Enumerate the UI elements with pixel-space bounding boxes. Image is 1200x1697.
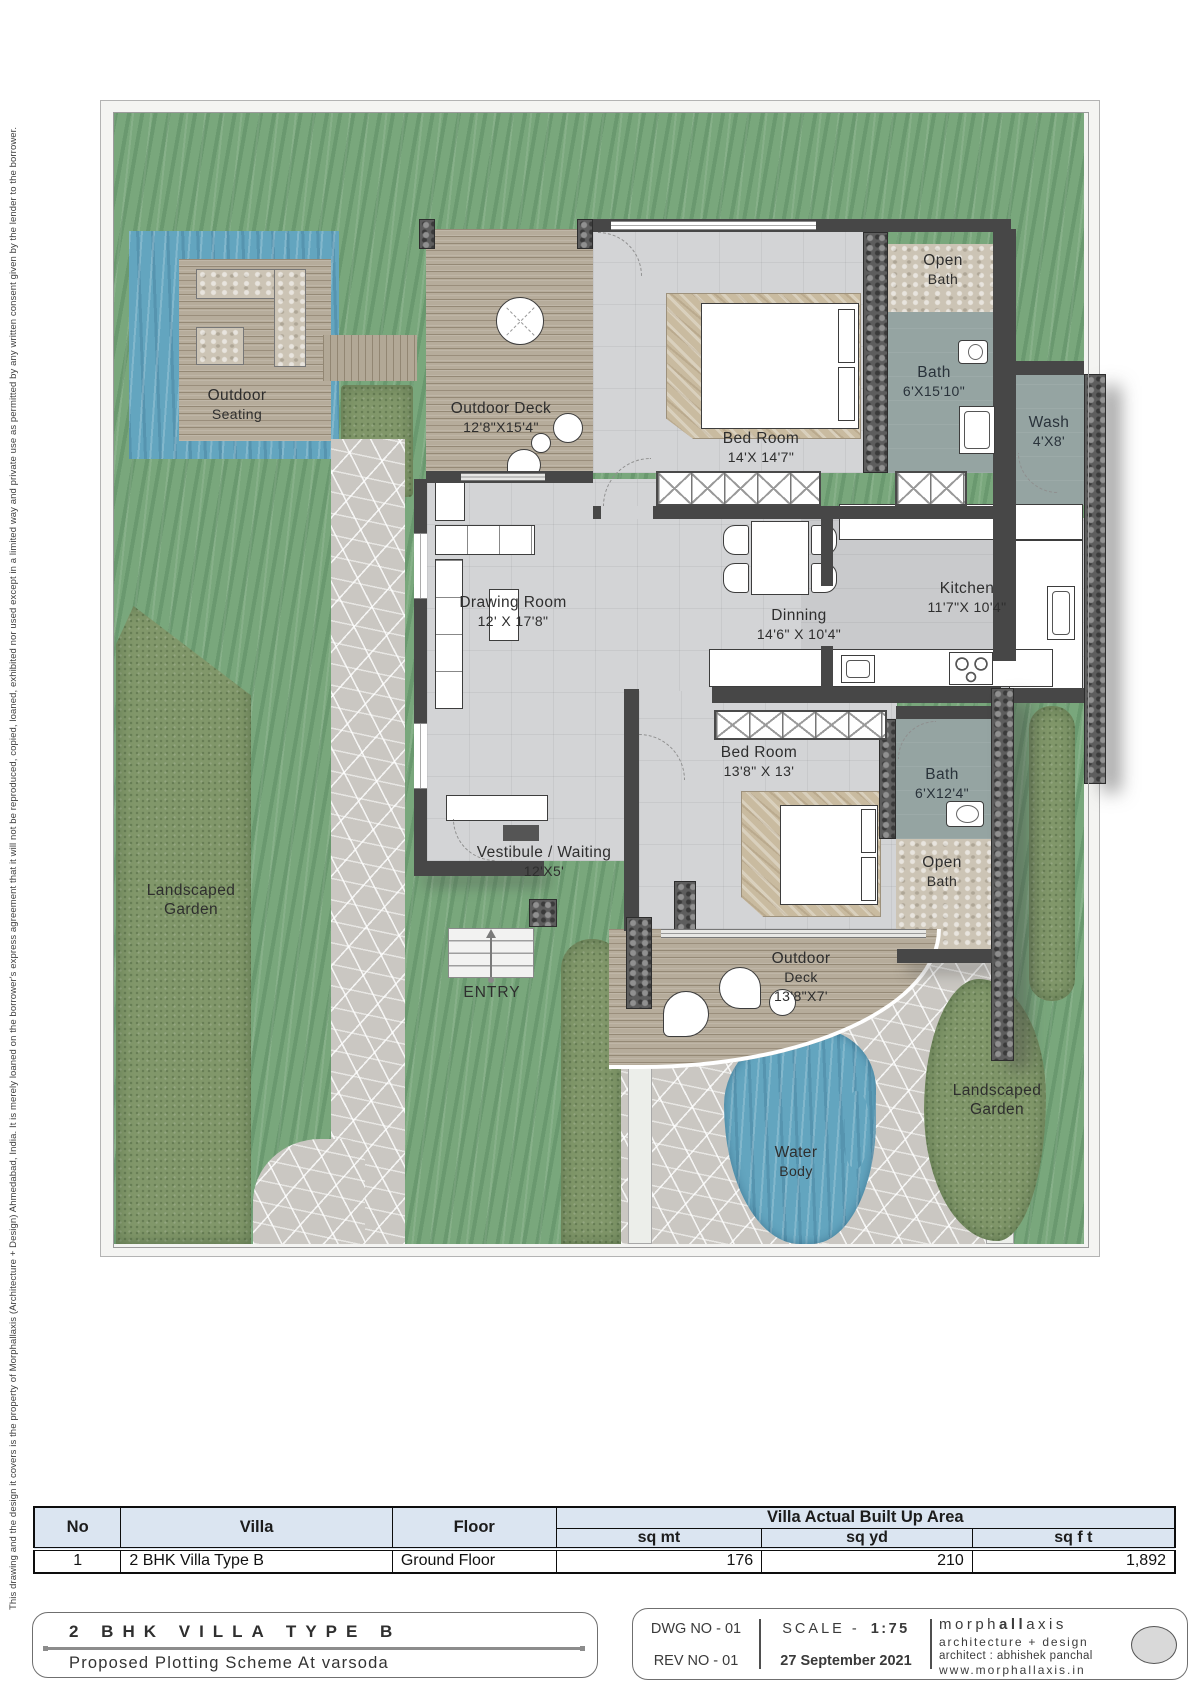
deck-pillar-left <box>419 219 435 249</box>
brand-tagline: architecture + design <box>939 1635 1089 1649</box>
kitchen-bottom-stub-wall <box>1014 688 1084 703</box>
col-no: No <box>34 1507 121 1549</box>
site-plan: OutdoorSeating Outdoor Deck12'8"X15'4" B… <box>100 100 1100 1257</box>
entry-arrow-line <box>490 937 492 977</box>
entry-arrow-head <box>486 929 496 938</box>
area-table-head: No Villa Floor Villa Actual Built Up Are… <box>34 1507 1175 1549</box>
brand-website: www.morphallaxis.in <box>939 1663 1086 1677</box>
label-open-bath2: OpenBath <box>922 853 962 891</box>
scale: SCALE - 1:75 <box>767 1621 925 1637</box>
wash-top-wall <box>1011 361 1084 375</box>
titleblock-right: DWG NO - 01 REV NO - 01 SCALE - 1:75 27 … <box>632 1608 1188 1680</box>
kitchen-sink <box>1047 586 1075 640</box>
copyright-disclaimer: This drawing and the design it covers is… <box>8 25 25 1610</box>
label-outdoor-seating: OutdoorSeating <box>208 386 267 424</box>
dwg-no: DWG NO - 01 <box>639 1621 753 1637</box>
wood-walkway <box>323 335 417 381</box>
col-sqmt: sq mt <box>556 1528 762 1549</box>
toilet-bath2 <box>946 801 984 827</box>
label-entry: ENTRY <box>463 983 520 1002</box>
divider-2 <box>930 1619 932 1669</box>
toilet-bath1 <box>958 340 988 364</box>
cell-sqmt: 176 <box>556 1549 762 1573</box>
col-sqyd: sq yd <box>762 1528 973 1549</box>
bedroom2-pillow-2 <box>861 857 876 901</box>
dining-chair-1 <box>723 525 749 555</box>
bedroom2-sliding-door <box>661 929 926 938</box>
sheet-subtitle: Proposed Plotting Scheme At varsoda <box>69 1654 389 1673</box>
sofa-horizontal <box>435 525 535 555</box>
vestibule-bench <box>446 795 548 821</box>
vestibule-side-table <box>503 825 539 841</box>
deck-round-table <box>496 297 544 345</box>
cell-sqyd: 210 <box>762 1549 973 1573</box>
area-table: No Villa Floor Villa Actual Built Up Are… <box>33 1506 1176 1574</box>
open-bath1-top-wall <box>863 219 1011 232</box>
bath2-top-wall <box>896 706 991 719</box>
landscaped-garden-right-strip <box>1029 706 1075 1001</box>
kitchen-bedroom2-wall <box>712 687 1001 703</box>
bedroom2-wardrobe <box>714 710 887 740</box>
basin-inner <box>846 660 870 678</box>
landscaped-garden-left <box>116 606 251 1244</box>
hob <box>949 652 993 685</box>
bedroom1-window <box>611 221 816 230</box>
bedroom1-pillow-1 <box>838 309 855 363</box>
dining-table <box>751 521 809 595</box>
col-sqft: sq f t <box>972 1528 1175 1549</box>
label-dining: Dinning14'6" X 10'4" <box>757 606 841 644</box>
sheet-title: 2 BHK VILLA TYPE B <box>69 1622 401 1642</box>
bath2-right-wall <box>991 688 1014 1061</box>
cell-sqft: 1,892 <box>972 1549 1175 1573</box>
bedroom1-door-gap <box>601 506 653 519</box>
stone-bench-right <box>274 269 306 367</box>
label-bedroom1: Bed Room14'X 14'7" <box>723 429 799 467</box>
label-garden-right: LandscapedGarden <box>953 1081 1041 1119</box>
outdoor-deck-top <box>426 229 593 481</box>
label-bedroom2: Bed Room13'8" X 13' <box>721 743 797 781</box>
sink-basin <box>1052 591 1070 635</box>
vanity1-basin <box>964 411 990 449</box>
dining-chair-2 <box>723 563 749 593</box>
dining-kitchen-wall-b <box>821 646 833 691</box>
bedroom1-bottom-wall <box>593 506 1003 519</box>
label-garden-left: LandscapedGarden <box>147 881 235 919</box>
cell-villa: 2 BHK Villa Type B <box>121 1549 392 1573</box>
brand-logo-text: morphallaxis <box>939 1616 1067 1633</box>
entry-pillar-2 <box>674 881 696 931</box>
deck-lounge-chair-1 <box>663 991 709 1037</box>
counter-basin <box>841 655 875 683</box>
title-underline <box>47 1647 581 1650</box>
area-table-body: 1 2 BHK Villa Type B Ground Floor 176 21… <box>34 1549 1175 1573</box>
cell-no: 1 <box>34 1549 121 1573</box>
entry-pillar-1 <box>529 899 557 927</box>
drawing-room-window-2 <box>414 723 427 789</box>
site-boundary-wall-right <box>1084 374 1106 784</box>
divider-1 <box>759 1619 761 1669</box>
label-drawing-room: Drawing Room12' X 17'8" <box>459 593 566 631</box>
stone-path <box>331 439 405 1244</box>
label-open-bath1: OpenBath <box>923 251 963 289</box>
label-kitchen: Kitchen11'7"X 10'4" <box>928 579 1007 617</box>
label-water-body: WaterBody <box>775 1143 818 1181</box>
deck-pillar-right <box>577 219 593 249</box>
drawing-room-window-1 <box>414 533 427 599</box>
label-wash: Wash4'X8' <box>1029 413 1070 451</box>
col-villa: Villa <box>121 1507 392 1549</box>
bedroom2-pillow-1 <box>861 809 876 853</box>
label-vestibule: Vestibule / Waiting12'X5' <box>477 843 612 881</box>
table-row: 1 2 BHK Villa Type B Ground Floor 176 21… <box>34 1549 1175 1573</box>
deck-sliding-door <box>461 473 545 481</box>
drawing-sheet: This drawing and the design it covers is… <box>0 0 1200 1697</box>
titleblock-left: 2 BHK VILLA TYPE B Proposed Plotting Sch… <box>32 1612 598 1678</box>
bath1-ledge <box>895 471 967 506</box>
deck-lounge-chair-2 <box>719 967 761 1009</box>
cell-floor: Ground Floor <box>392 1549 556 1573</box>
deck-chair-1 <box>553 413 583 443</box>
label-bath1: Bath6'X15'10" <box>903 363 965 401</box>
deck2-left-pillar <box>626 917 652 1009</box>
col-floor: Floor <box>392 1507 556 1549</box>
rev-no: REV NO - 01 <box>639 1653 753 1669</box>
vanity-bath1 <box>959 406 995 454</box>
label-outdoor-deck-top: Outdoor Deck12'8"X15'4" <box>451 399 551 437</box>
open-bath2-bottom-wall <box>897 949 992 963</box>
brand-logo-ellipse <box>1131 1626 1177 1664</box>
label-outdoor-deck-bottom: OutdoorDeck13'8"X7' <box>772 949 831 1006</box>
dining-kitchen-wall-a <box>821 506 833 586</box>
date: 27 September 2021 <box>767 1653 925 1669</box>
bedroom1-pillow-2 <box>838 367 855 421</box>
brand-architect: architect : abhishek panchal <box>939 1650 1093 1662</box>
bedroom1-wardrobe <box>656 471 821 506</box>
sofa-vertical <box>435 559 463 709</box>
vestibule-bedroom2-wall <box>624 689 639 931</box>
col-builtup: Villa Actual Built Up Area <box>556 1507 1175 1528</box>
bedroom1-bath-wall <box>863 232 888 473</box>
stone-bench-small <box>196 327 244 365</box>
label-bath2: Bath6'X12'4" <box>915 765 969 803</box>
bedroom1-bed <box>701 303 859 429</box>
